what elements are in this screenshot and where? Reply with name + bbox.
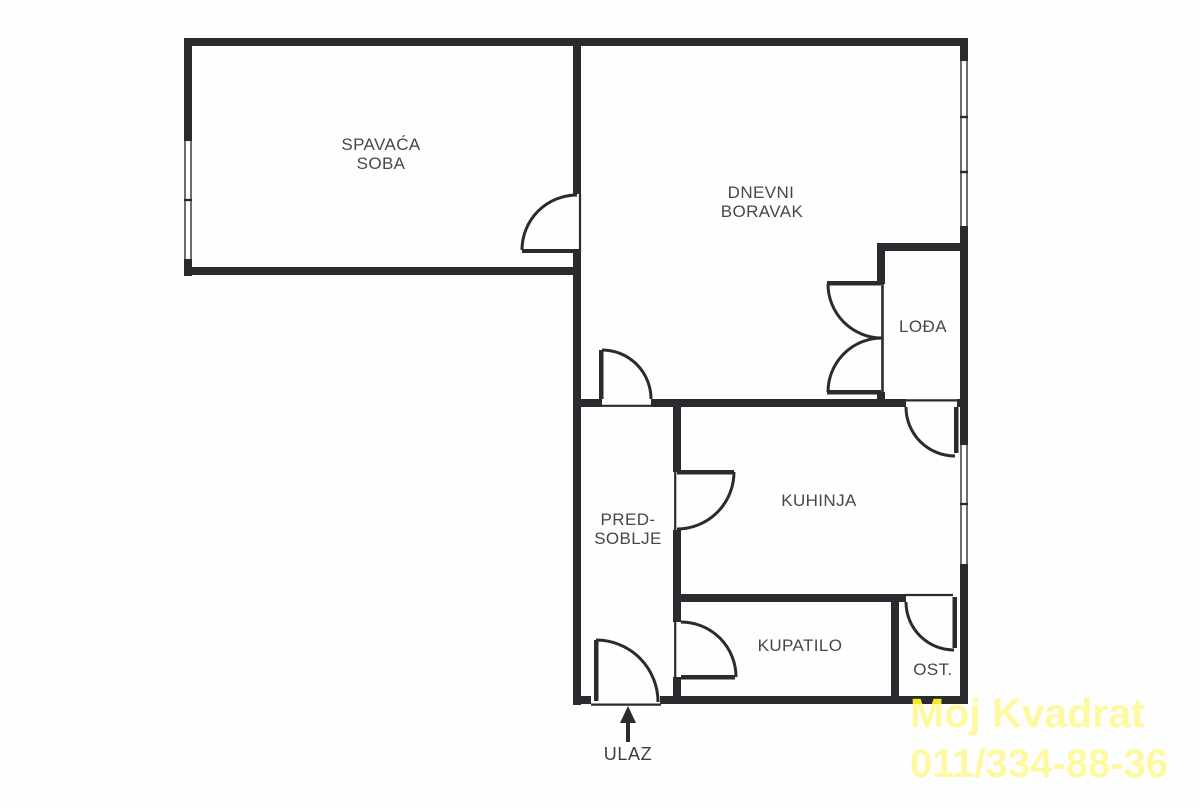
svg-text:SPAVAĆA: SPAVAĆA <box>341 135 421 154</box>
svg-text:KUPATILO: KUPATILO <box>758 636 843 655</box>
svg-text:ULAZ: ULAZ <box>604 744 652 764</box>
svg-text:OST.: OST. <box>913 660 952 679</box>
svg-text:LOĐA: LOĐA <box>899 317 947 336</box>
svg-text:DNEVNI: DNEVNI <box>728 183 795 202</box>
svg-text:SOBLJE: SOBLJE <box>594 529 662 548</box>
svg-text:PRED-: PRED- <box>601 510 656 529</box>
svg-text:011/334-88-36: 011/334-88-36 <box>910 742 1168 786</box>
svg-text:BORAVAK: BORAVAK <box>721 202 804 221</box>
svg-text:KUHINJA: KUHINJA <box>781 491 857 510</box>
svg-text:SOBA: SOBA <box>357 154 406 173</box>
svg-text:Moj Kvadrat: Moj Kvadrat <box>910 690 1145 736</box>
